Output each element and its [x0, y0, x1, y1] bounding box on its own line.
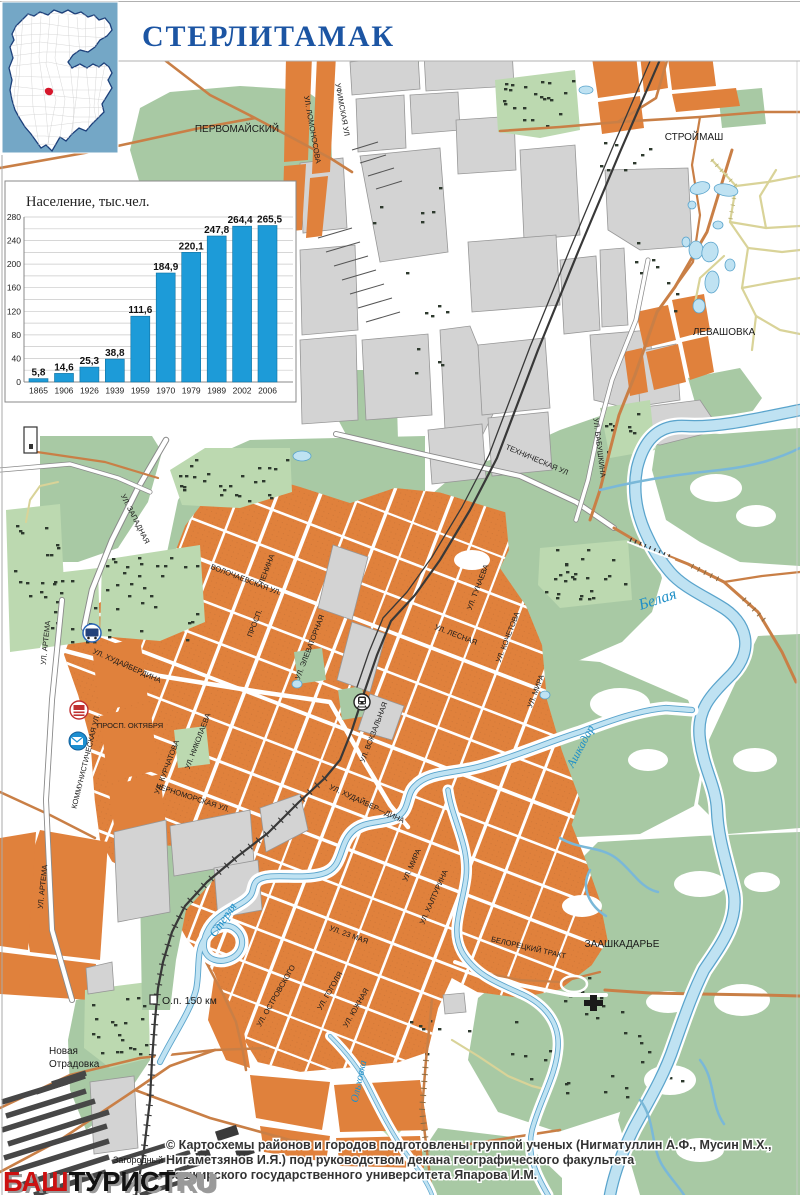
svg-text:Загородный: Загородный: [113, 1155, 163, 1165]
svg-text:14,6: 14,6: [54, 362, 74, 373]
svg-text:220,1: 220,1: [179, 241, 204, 252]
svg-text:2006: 2006: [258, 386, 277, 396]
svg-text:25,3: 25,3: [80, 356, 100, 367]
svg-text:© Картосхемы районов и городов: © Картосхемы районов и городов подготовл…: [166, 1138, 771, 1152]
svg-text:БАШТУРИСТRU: БАШТУРИСТRU: [3, 1166, 215, 1195]
svg-text:240: 240: [7, 236, 21, 246]
svg-text:Башкирского государственного у: Башкирского государственного университет…: [166, 1168, 537, 1182]
svg-text:ЛЕВАШОВКА: ЛЕВАШОВКА: [693, 327, 756, 338]
svg-text:1939: 1939: [105, 386, 124, 396]
svg-text:Население, тыс.чел.: Население, тыс.чел.: [26, 194, 150, 210]
svg-text:Нигаметзянов И.Я.) под руковод: Нигаметзянов И.Я.) под руководством дека…: [166, 1153, 635, 1167]
svg-text:Новая: Новая: [49, 1046, 78, 1057]
svg-text:СТРОЙМАШ: СТРОЙМАШ: [665, 130, 724, 143]
svg-text:СТЕРЛИТАМАК: СТЕРЛИТАМАК: [142, 20, 395, 53]
svg-text:184,9: 184,9: [153, 262, 178, 273]
svg-text:Отрадовка: Отрадовка: [49, 1059, 100, 1070]
svg-text:40: 40: [12, 353, 22, 363]
svg-text:200: 200: [7, 259, 21, 269]
svg-text:1989: 1989: [207, 386, 226, 396]
svg-text:120: 120: [7, 306, 21, 316]
svg-text:111,6: 111,6: [128, 305, 152, 316]
svg-text:265,5: 265,5: [257, 215, 282, 226]
svg-text:ПРОСП. ОКТЯБРЯ: ПРОСП. ОКТЯБРЯ: [97, 721, 163, 730]
svg-text:280: 280: [7, 212, 21, 222]
svg-text:1970: 1970: [156, 386, 175, 396]
svg-text:1906: 1906: [54, 386, 73, 396]
svg-text:1979: 1979: [182, 386, 201, 396]
svg-text:264,4: 264,4: [228, 215, 253, 226]
svg-text:ЗААШКАДАРЬЕ: ЗААШКАДАРЬЕ: [585, 939, 660, 950]
svg-text:160: 160: [7, 283, 21, 293]
svg-text:80: 80: [12, 330, 22, 340]
svg-text:О.п. 150 км: О.п. 150 км: [162, 995, 217, 1007]
svg-text:1865: 1865: [29, 386, 48, 396]
svg-text:247,8: 247,8: [204, 225, 229, 236]
svg-text:2002: 2002: [233, 386, 252, 396]
svg-text:1959: 1959: [131, 386, 150, 396]
svg-text:1926: 1926: [80, 386, 99, 396]
svg-text:38,8: 38,8: [105, 348, 125, 359]
svg-text:0: 0: [16, 377, 21, 387]
svg-text:ПЕРВОМАЙСКИЙ: ПЕРВОМАЙСКИЙ: [195, 122, 279, 135]
svg-text:5,8: 5,8: [32, 368, 46, 379]
